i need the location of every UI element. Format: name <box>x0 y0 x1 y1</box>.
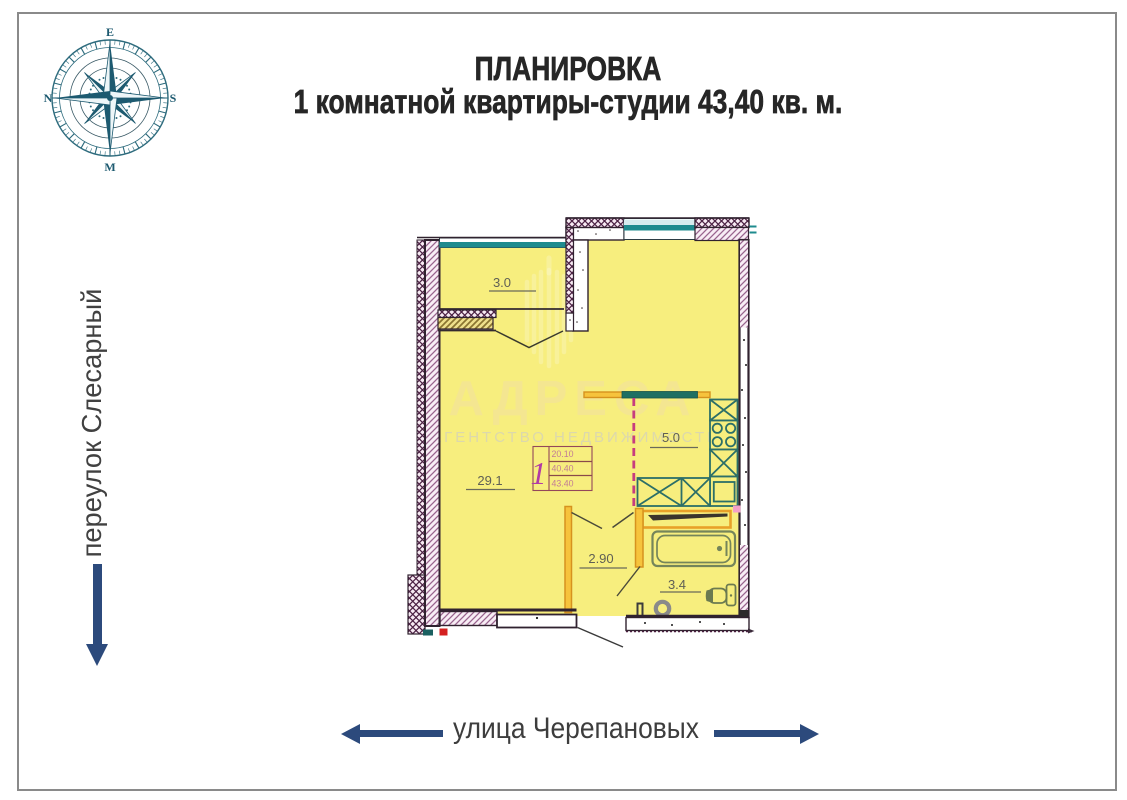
svg-text:3.4: 3.4 <box>668 577 686 592</box>
svg-text:29.1: 29.1 <box>477 473 502 488</box>
svg-text:40.40: 40.40 <box>552 464 574 474</box>
svg-text:M: M <box>104 160 115 174</box>
svg-text:S: S <box>170 91 177 105</box>
svg-text:N: N <box>44 91 53 105</box>
svg-text:1: 1 <box>531 455 547 491</box>
svg-text:3.0: 3.0 <box>493 275 511 290</box>
svg-text:Е: Е <box>106 25 114 39</box>
svg-text:43.40: 43.40 <box>552 479 574 489</box>
svg-text:5.0: 5.0 <box>662 430 680 445</box>
svg-text:2.90: 2.90 <box>588 551 613 566</box>
svg-text:20.10: 20.10 <box>552 449 574 459</box>
svg-text:АДРЕСА: АДРЕСА <box>448 372 697 426</box>
